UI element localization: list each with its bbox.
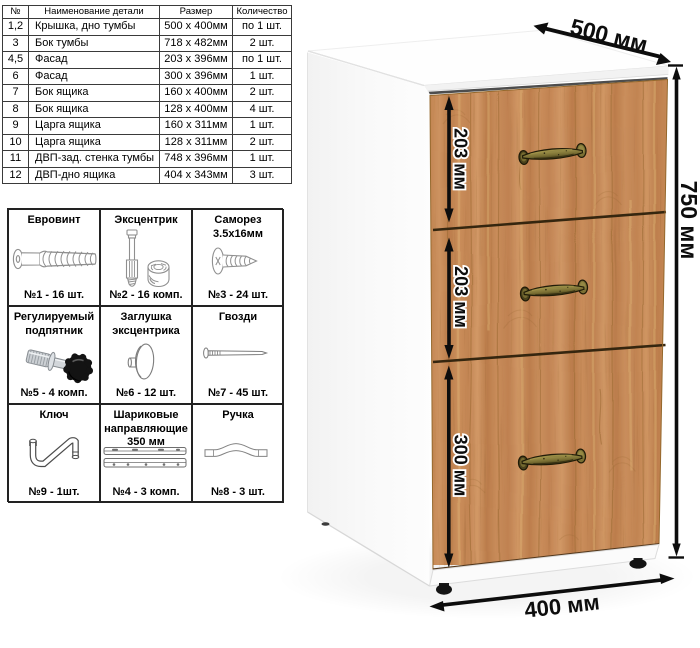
- svg-text:203 мм: 203 мм: [451, 128, 471, 190]
- svg-text:500 мм: 500 мм: [568, 13, 651, 57]
- svg-text:750 мм: 750 мм: [676, 181, 700, 260]
- svg-text:400 мм: 400 мм: [523, 589, 601, 622]
- svg-text:203 мм: 203 мм: [451, 266, 471, 328]
- svg-text:300 мм: 300 мм: [451, 435, 471, 497]
